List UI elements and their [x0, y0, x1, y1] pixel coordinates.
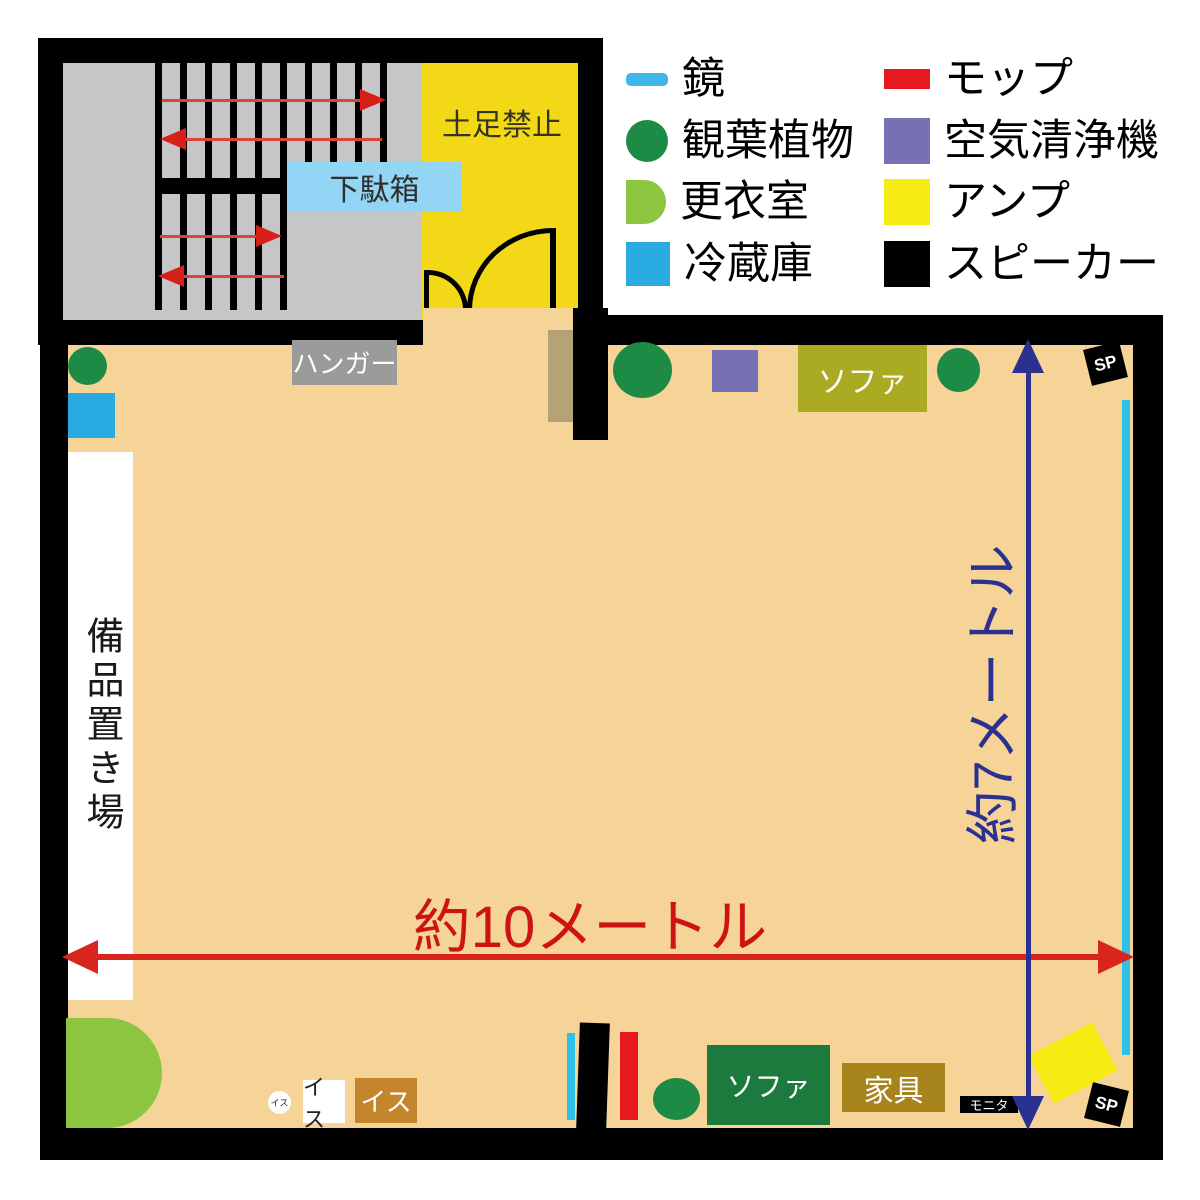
legend-item-refrigerator: 冷蔵庫: [626, 240, 813, 288]
hanger-label: ハンガー: [292, 344, 396, 381]
legend-label: モップ: [944, 55, 1073, 103]
door-leaf-line-icon: [424, 270, 429, 310]
chair-brown: イス: [355, 1078, 417, 1123]
stairs-upper-flight: [155, 63, 390, 178]
plant-icon: [613, 342, 672, 398]
sofa-label: ソファ: [726, 1065, 810, 1105]
hanger-rack: ハンガー: [292, 340, 397, 385]
arrow-up-icon: [1012, 339, 1044, 373]
chair-small-round: イス: [268, 1091, 291, 1114]
sofa-top: ソファ: [798, 345, 927, 412]
stair-arrow-right-icon: [256, 225, 282, 247]
mirror-icon: [626, 73, 668, 86]
legend-item-air-purifier: 空気清浄機: [884, 117, 1159, 165]
legend-label: 鏡: [682, 55, 725, 103]
stair-arrow-line: [162, 99, 362, 102]
equipment-storage-label: 備品置き場: [68, 616, 133, 836]
legend-label: 観葉植物: [682, 117, 854, 165]
refrigerator: [68, 393, 115, 438]
speaker-box: [576, 1023, 610, 1131]
legend-label: 空気清浄機: [944, 117, 1159, 165]
plant-icon: [937, 348, 980, 392]
legend-label: 冷蔵庫: [684, 240, 813, 288]
height-dimension-label: 約7メートル: [949, 520, 1028, 870]
stair-arrow-right-icon: [360, 89, 386, 111]
stairs-lower-flight: [155, 194, 288, 310]
open-door-leaf: [548, 330, 573, 422]
legend-item-plant: 観葉植物: [626, 117, 854, 165]
sofa-bottom: ソファ: [707, 1045, 830, 1125]
furniture-cabinet: 家具: [842, 1063, 945, 1112]
speaker-icon: [884, 241, 930, 287]
legend-item-mirror: 鏡: [626, 55, 725, 103]
furniture-label: 家具: [864, 1066, 924, 1110]
stair-arrow-left-icon: [160, 128, 186, 150]
width-dimension-label: 約10メートル: [340, 880, 840, 964]
legend-label: アンプ: [944, 178, 1070, 226]
stair-arrow-line: [186, 138, 382, 141]
plant-icon: [68, 347, 107, 385]
legend-item-speaker: スピーカー: [884, 240, 1159, 288]
refrigerator-icon: [626, 242, 670, 286]
air-purifier: [712, 350, 758, 392]
door-leaf-line-icon: [550, 228, 556, 310]
stair-landing: [155, 178, 288, 194]
equipment-storage: 備品置き場: [68, 452, 133, 1000]
stair-arrow-left-icon: [158, 265, 184, 287]
chair-white: イス: [303, 1080, 345, 1123]
arrow-left-icon: [62, 940, 98, 974]
monitor: モニタ: [960, 1096, 1018, 1113]
legend-item-amp: アンプ: [884, 178, 1070, 226]
arrow-down-icon: [1012, 1096, 1044, 1130]
legend-item-changing-room: 更衣室: [626, 178, 809, 226]
mirror-bottom-wall: [567, 1033, 575, 1120]
stair-arrow-line: [184, 275, 284, 278]
no-shoes-label: 土足禁止: [432, 100, 572, 144]
legend-item-mop: モップ: [884, 55, 1073, 103]
floor-plan: 土足禁止 下駄箱 鏡 観葉植物 更衣室 冷蔵庫 モップ 空気清浄: [0, 0, 1200, 1200]
stair-arrow-line: [160, 235, 258, 238]
air-purifier-icon: [884, 118, 930, 164]
shoe-cabinet-label: 下駄箱: [330, 165, 420, 209]
shoe-cabinet: 下駄箱: [287, 162, 462, 212]
legend-label: 更衣室: [680, 178, 809, 226]
wall-stub: [573, 308, 608, 440]
arrow-right-icon: [1098, 940, 1134, 974]
plant-icon: [626, 120, 668, 162]
amp-icon: [884, 179, 930, 225]
changing-room-icon: [626, 180, 666, 224]
sofa-label: ソファ: [818, 357, 908, 401]
mop-icon: [884, 69, 930, 89]
mop: [620, 1032, 638, 1120]
legend-label: スピーカー: [944, 240, 1159, 288]
plant-icon: [653, 1078, 700, 1120]
